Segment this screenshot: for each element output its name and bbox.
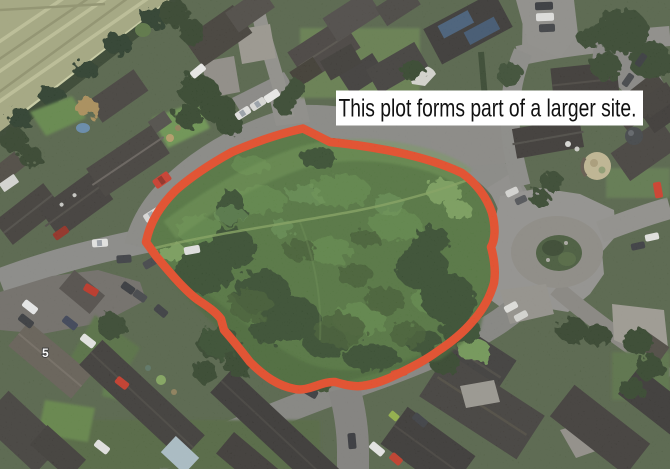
svg-text:This plot forms part of a larg: This plot forms part of a larger site. [339,95,637,123]
svg-text:5: 5 [42,346,49,360]
